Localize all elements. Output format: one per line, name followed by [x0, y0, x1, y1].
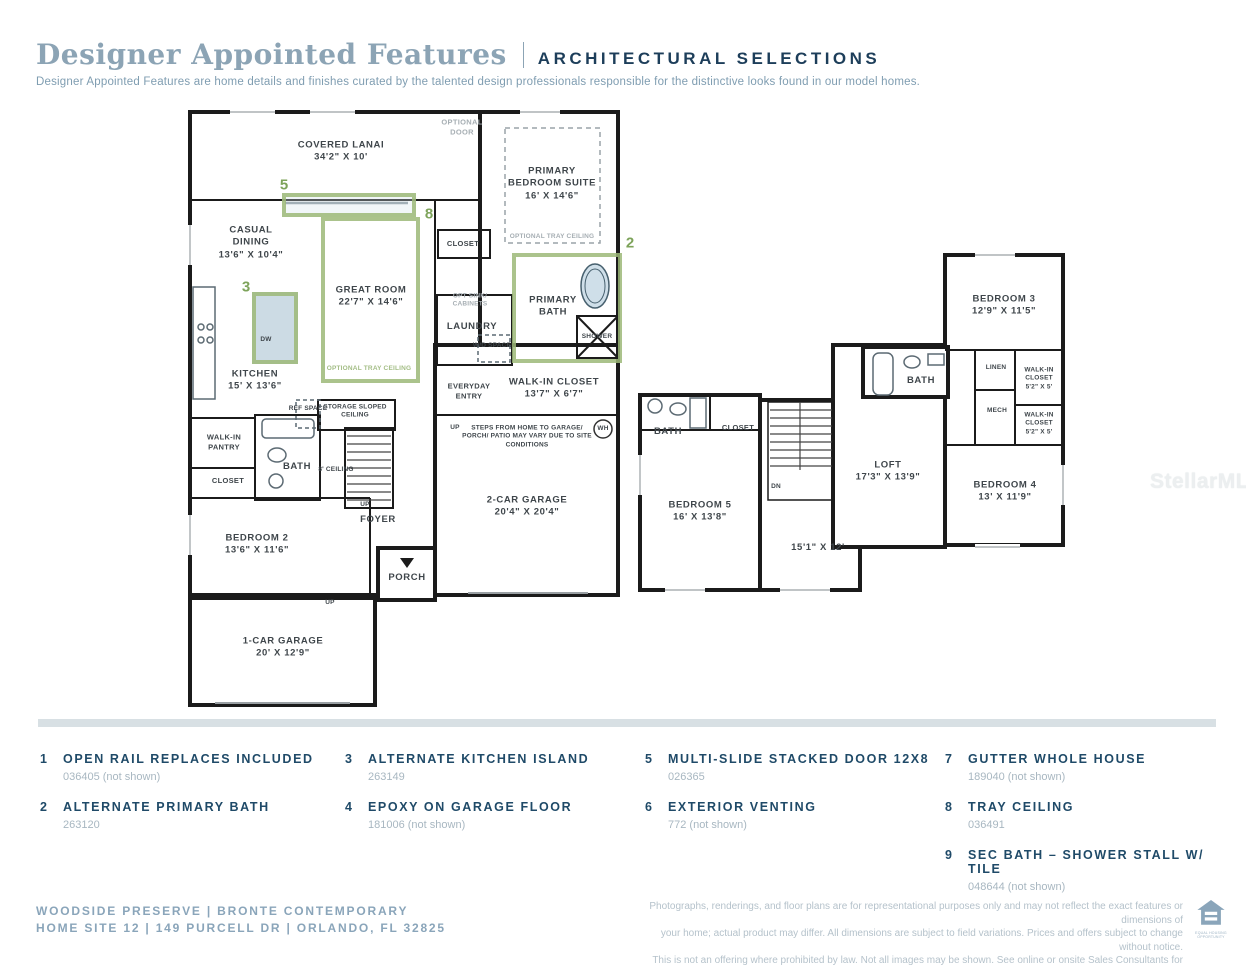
label-wd-space: W/D SPACE [463, 342, 521, 350]
highlight-box-kitchen-island [252, 292, 298, 364]
room-label-2-car-garage: 2-CAR GARAGE20'4" X 20'4" [487, 495, 568, 520]
label-up-entry: UP [450, 424, 459, 432]
label-open-area-dims: 15'1" X 12' [791, 542, 845, 554]
room-label-wic-lower: WALK-IN CLOSET5'2" X 5' [1010, 411, 1068, 436]
room-label-bedroom2: BEDROOM 213'6" X 11'6" [225, 533, 289, 558]
room-label-bedroom5: BEDROOM 516' X 13'8" [669, 500, 732, 525]
label-opt-sink-cabinets: OPT SINK/ CABINETS [441, 293, 499, 310]
room-label-closet-top: CLOSET [447, 239, 479, 249]
room-label-mech: MECH [987, 407, 1007, 415]
room-label-bath2-right: BATH [907, 375, 935, 387]
room-label-bath2-left: BATH [654, 426, 682, 438]
annotation-number-8: 8 [425, 206, 433, 223]
room-label-storage: STORAGE SLOPED CEILING [318, 404, 392, 421]
label-optional-door: OPTIONAL DOOR [433, 117, 491, 137]
room-label-wic-upper: WALK-IN CLOSET5'2" X 5' [1010, 366, 1068, 391]
label-up-stairs: UP [360, 501, 369, 509]
label-dn-stairs: DN [771, 483, 781, 491]
label-steps-note: STEPS FROM HOME TO GARAGE/ PORCH/ PATIO … [462, 424, 592, 449]
room-label-great-room: GREAT ROOM22'7" X 14'6" [334, 285, 408, 310]
room-label-closet-left: CLOSET [212, 476, 244, 486]
room-label-1-car-garage: 1-CAR GARAGE20' X 12'9" [243, 636, 324, 661]
room-label-walk-in-pantry: WALK-IN PANTRY [195, 432, 253, 452]
watermark: StellarMLS [1150, 470, 1246, 494]
label-optional-tray-suite: OPTIONAL TRAY CEILING [510, 233, 595, 241]
room-label-closet2: CLOSET [722, 423, 754, 433]
label-dishwasher: DW [260, 336, 271, 344]
annotation-number-3: 3 [242, 279, 250, 296]
room-label-laundry: LAUNDRY [447, 321, 497, 333]
room-label-kitchen: KITCHEN15' X 13'6" [228, 369, 282, 394]
room-label-bedroom3: BEDROOM 312'9" X 11'5" [972, 294, 1036, 319]
highlight-box-multislide-door [282, 193, 416, 217]
room-label-foyer: FOYER [360, 514, 396, 526]
room-label-bedroom4: BEDROOM 413' X 11'9" [974, 480, 1037, 505]
room-label-loft: LOFT17'3" X 13'9" [856, 460, 921, 485]
room-label-primary-bath: PRIMARY BATH [524, 295, 582, 320]
annotation-number-2: 2 [626, 235, 634, 252]
label-8ft-ceiling: 8' CEILING [307, 466, 365, 474]
label-water-heater: WH [597, 425, 608, 433]
feature-sheet: Designer Appointed FeaturesARCHITECTURAL… [0, 0, 1246, 965]
room-label-porch: PORCH [388, 572, 425, 584]
annotation-number-5: 5 [280, 177, 288, 194]
label-shower: SHOWER [582, 333, 612, 341]
room-label-casual-dining: CASUAL DINING13'6" X 10'4" [214, 224, 288, 261]
room-label-everyday-entry: EVERYDAY ENTRY [440, 381, 498, 401]
room-label-walk-in-closet: WALK-IN CLOSET13'7" X 6'7" [509, 377, 599, 402]
floorplan-linework [0, 0, 1246, 965]
label-up-garage: UP [325, 599, 334, 607]
room-label-linen: LINEN [986, 364, 1007, 372]
room-label-covered-lanai: COVERED LANAI34'2" X 10' [298, 140, 384, 165]
label-optional-tray-great-room: OPTIONAL TRAY CEILING [327, 365, 412, 373]
room-label-primary-suite: PRIMARY BEDROOM SUITE16' X 14'6" [505, 165, 600, 202]
